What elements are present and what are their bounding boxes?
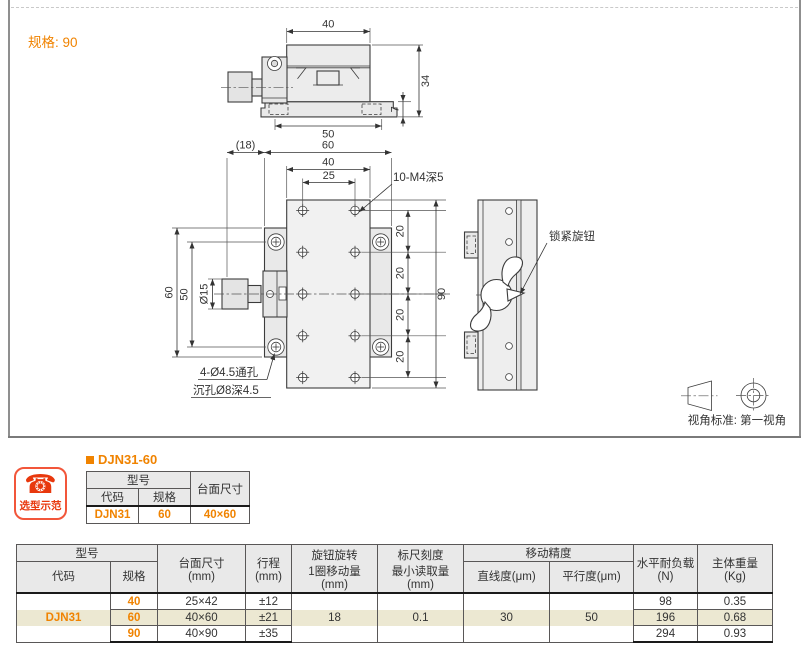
col-header-scale-min: 标尺刻度 最小读取量 (mm) (378, 545, 464, 594)
col-header-model: 型号 (17, 545, 158, 562)
col-header-straightness: 直线度(μm) (464, 562, 550, 594)
col-header-code: 代码 (17, 562, 111, 594)
weight-value: 0.93 (698, 626, 773, 643)
load-value: 98 (634, 593, 698, 610)
mini-header-spec: 规格 (139, 489, 191, 507)
part-number-heading: DJN31-60 (86, 452, 157, 466)
selection-example-label: 选型示范 (16, 498, 65, 513)
col-header-per-turn: 旋钮旋转 1圈移动量 (mm) (292, 545, 378, 594)
svg-text:20: 20 (395, 225, 407, 237)
dim-front-base-height: 7 (390, 92, 412, 127)
col-header-weight: 主体重量 (Kg) (698, 545, 773, 594)
load-unit: (N) (634, 571, 697, 583)
selection-example-table: 型号 台面尺寸 代码 规格 DJN31 60 40×60 (86, 471, 250, 524)
parallelism-value: 50 (550, 593, 634, 642)
load-value: 196 (634, 610, 698, 626)
svg-text:(18): (18) (236, 140, 256, 152)
side-hole (506, 374, 513, 381)
projection-label: 视角标准: 第一视角 (688, 413, 786, 427)
svg-text:50: 50 (179, 288, 191, 300)
svg-text:20: 20 (395, 309, 407, 321)
svg-text:60: 60 (322, 140, 334, 152)
weight-label: 主体重量 (698, 555, 772, 571)
side-hole (506, 208, 513, 215)
table-size-value: 25×42 (158, 593, 246, 610)
selection-example-badge: ☎ 选型示范 (14, 467, 67, 520)
scale-unit: (mm) (378, 579, 463, 591)
svg-text:60: 60 (164, 286, 176, 298)
mini-table-size-value: 40×60 (191, 506, 250, 524)
svg-text:34: 34 (420, 75, 432, 87)
side-hole (506, 239, 513, 246)
scale-label-2: 最小读取量 (378, 563, 463, 579)
svg-text:锁紧旋钮: 锁紧旋钮 (549, 229, 595, 243)
travel-value: ±12 (246, 593, 292, 610)
svg-text:10-M4深5: 10-M4深5 (393, 170, 444, 184)
travel-value: ±35 (246, 626, 292, 643)
svg-text:40: 40 (322, 19, 334, 31)
plan-view: (18) 60 40 25 10-M4深5 (164, 140, 451, 398)
svg-text:7: 7 (390, 106, 402, 112)
scale-min-value: 0.1 (378, 593, 464, 642)
per-turn-label-1: 旋钮旋转 (292, 547, 377, 563)
dim-plan-knob-offset: (18) (227, 140, 265, 278)
counterbore-hole (268, 234, 284, 250)
per-turn-label-2: 1圈移动量 (292, 563, 377, 579)
weight-value: 0.68 (698, 610, 773, 626)
mini-code-value: DJN31 (87, 506, 139, 524)
spec-value: 60 (111, 610, 158, 626)
col-header-spec: 规格 (111, 562, 158, 594)
spec-value: 40 (111, 593, 158, 610)
load-value: 294 (634, 626, 698, 643)
svg-text:90: 90 (436, 288, 448, 300)
scale-label-1: 标尺刻度 (378, 547, 463, 563)
projection-symbol: 视角标准: 第一视角 (681, 378, 786, 427)
table-size-value: 40×60 (158, 610, 246, 626)
target-circles-icon (736, 378, 771, 413)
travel-label: 行程 (246, 555, 291, 571)
front-tongue (317, 71, 339, 85)
col-header-parallelism: 平行度(μm) (550, 562, 634, 594)
mini-header-table-size: 台面尺寸 (191, 472, 250, 507)
front-view: 40 34 7 50 (221, 19, 432, 141)
side-hole (506, 343, 513, 350)
code-value: DJN31 (17, 593, 111, 642)
side-clamp-top (465, 232, 479, 258)
dim-front-base-width: 50 (275, 119, 382, 141)
col-header-travel: 行程 (mm) (246, 545, 292, 594)
straightness-value: 30 (464, 593, 550, 642)
table-size-label: 台面尺寸 (158, 555, 245, 571)
svg-text:40: 40 (322, 157, 334, 169)
travel-value: ±21 (246, 610, 292, 626)
label-tap-holes: 10-M4深5 (359, 170, 444, 212)
svg-text:20: 20 (395, 267, 407, 279)
col-header-load: 水平耐负载 (N) (634, 545, 698, 594)
counterbore-hole (373, 339, 389, 355)
counterbore-hole (268, 339, 284, 355)
side-view: 锁紧旋钮 (465, 200, 596, 390)
svg-text:Ø15: Ø15 (199, 284, 211, 305)
part-number-text: DJN31-60 (98, 452, 157, 467)
mini-header-model: 型号 (87, 472, 191, 489)
col-header-table-size: 台面尺寸 (mm) (158, 545, 246, 594)
specification-table: 型号 台面尺寸 (mm) 行程 (mm) 旋钮旋转 1圈移动量 (mm) 标尺刻… (16, 544, 773, 643)
spec-value: 90 (111, 626, 158, 643)
travel-unit: (mm) (246, 571, 291, 583)
phone-icon: ☎ (16, 470, 65, 498)
table-size-unit: (mm) (158, 571, 245, 583)
svg-text:25: 25 (323, 170, 335, 182)
svg-text:沉孔Ø8深4.5: 沉孔Ø8深4.5 (193, 383, 259, 397)
square-bullet-icon (86, 456, 94, 464)
svg-text:4-Ø4.5通孔: 4-Ø4.5通孔 (200, 366, 259, 379)
side-clamp-bottom (465, 332, 479, 358)
catalog-page: 规格: 90 (0, 0, 808, 650)
load-label: 水平耐负载 (634, 555, 697, 571)
col-header-accuracy: 移动精度 (464, 545, 634, 562)
mini-spec-value: 60 (139, 506, 191, 524)
dim-front-top-width: 40 (287, 19, 370, 44)
counterbore-hole (373, 234, 389, 250)
per-turn-unit: (mm) (292, 579, 377, 591)
technical-drawing: 40 34 7 50 (0, 0, 808, 440)
mini-header-code: 代码 (87, 489, 139, 507)
per-turn-value: 18 (292, 593, 378, 642)
svg-text:20: 20 (395, 351, 407, 363)
plan-clamp-notch (279, 287, 286, 300)
label-through-holes: 4-Ø4.5通孔 沉孔Ø8深4.5 (191, 354, 275, 398)
front-lock-screw-inner (271, 60, 277, 66)
weight-value: 0.35 (698, 593, 773, 610)
dim-plan-plate-length: 90 (436, 200, 448, 388)
weight-unit: (Kg) (698, 571, 772, 583)
table-size-value: 40×90 (158, 626, 246, 643)
